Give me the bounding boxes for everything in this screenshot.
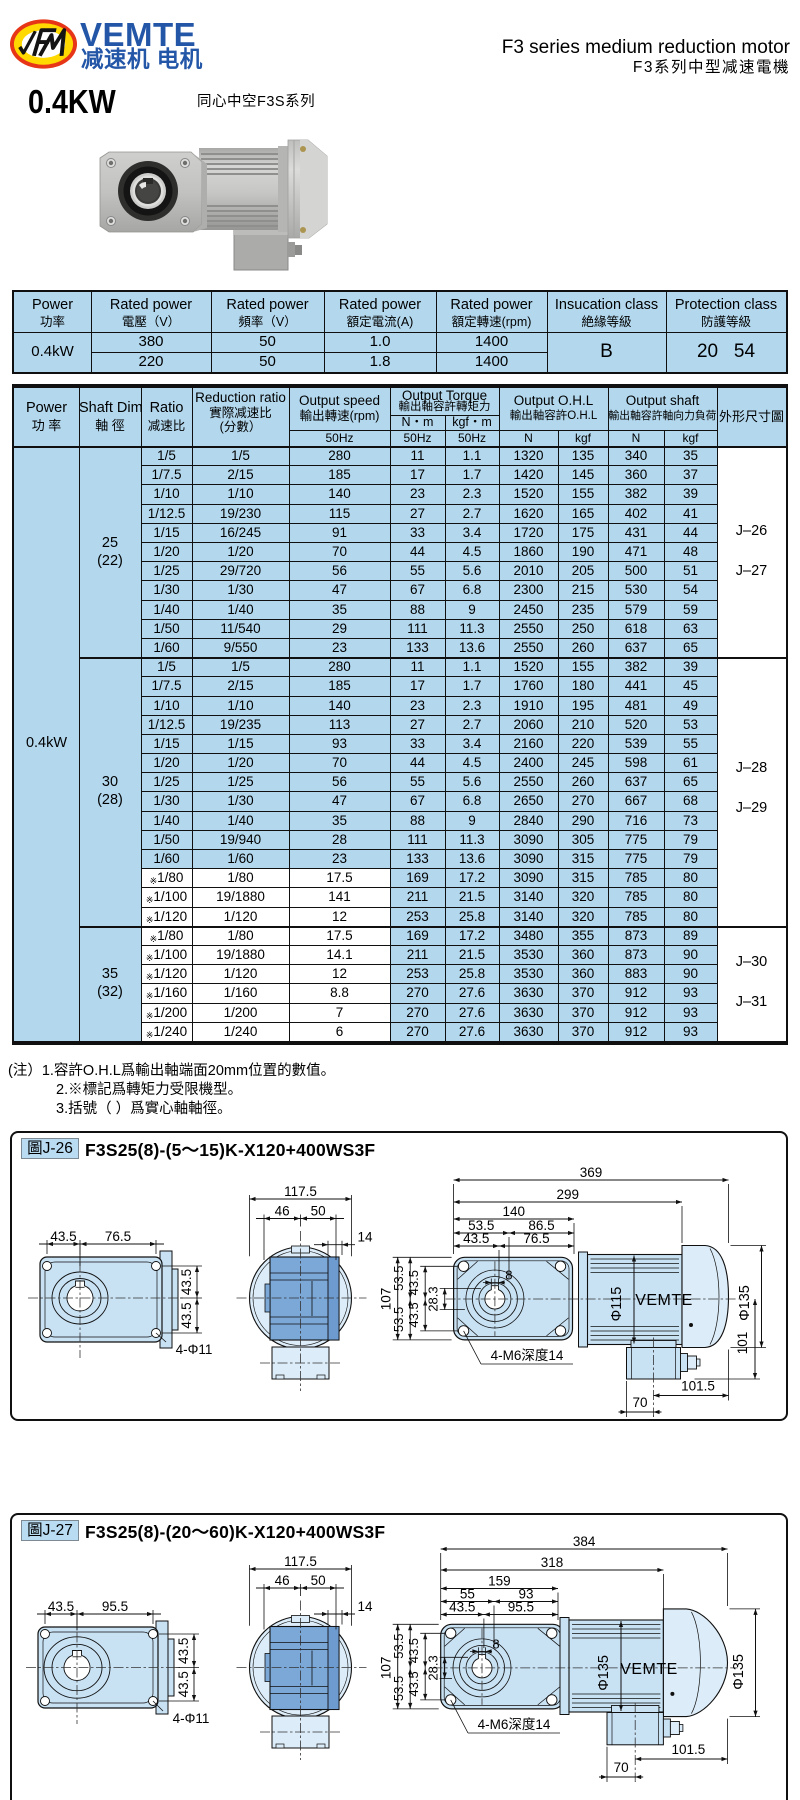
svg-text:4-Φ11: 4-Φ11 — [173, 1711, 210, 1726]
svg-text:28.3: 28.3 — [426, 1655, 441, 1680]
svg-text:101.5: 101.5 — [672, 1742, 706, 1757]
svg-text:50: 50 — [311, 1573, 326, 1588]
svg-text:117.5: 117.5 — [284, 1554, 317, 1569]
svg-text:8: 8 — [492, 1636, 499, 1651]
svg-text:VEMTE: VEMTE — [635, 1292, 693, 1309]
svg-text:14: 14 — [357, 1230, 373, 1245]
svg-text:4-Φ11: 4-Φ11 — [176, 1342, 213, 1357]
svg-text:70: 70 — [614, 1760, 629, 1775]
svg-text:43.5: 43.5 — [406, 1671, 421, 1696]
svg-text:43.5: 43.5 — [179, 1269, 194, 1295]
svg-text:4-M6深度14: 4-M6深度14 — [491, 1348, 564, 1363]
svg-text:50: 50 — [311, 1204, 326, 1219]
svg-text:299: 299 — [557, 1187, 580, 1202]
svg-text:53.5: 53.5 — [391, 1633, 406, 1658]
svg-text:43.5: 43.5 — [406, 1302, 421, 1327]
svg-text:Φ135: Φ135 — [737, 1285, 753, 1321]
svg-text:384: 384 — [573, 1534, 596, 1549]
svg-text:101.5: 101.5 — [681, 1379, 715, 1394]
svg-text:43.5: 43.5 — [406, 1638, 421, 1663]
svg-text:53.5: 53.5 — [391, 1266, 406, 1291]
svg-text:159: 159 — [488, 1574, 511, 1589]
svg-text:95.5: 95.5 — [102, 1599, 128, 1614]
svg-text:46: 46 — [275, 1573, 290, 1588]
svg-text:43.5: 43.5 — [176, 1671, 191, 1697]
svg-text:46: 46 — [275, 1204, 290, 1219]
svg-text:43.5: 43.5 — [449, 1600, 475, 1615]
svg-text:76.5: 76.5 — [523, 1231, 549, 1246]
svg-text:140: 140 — [503, 1204, 526, 1219]
svg-text:318: 318 — [541, 1555, 564, 1570]
svg-text:43.5: 43.5 — [48, 1599, 74, 1614]
svg-text:Φ135: Φ135 — [596, 1655, 612, 1691]
svg-text:43.5: 43.5 — [176, 1638, 191, 1664]
svg-text:53.5: 53.5 — [391, 1307, 406, 1332]
svg-text:Φ135: Φ135 — [731, 1654, 747, 1690]
svg-text:43.5: 43.5 — [463, 1231, 489, 1246]
svg-text:43.5: 43.5 — [179, 1302, 194, 1328]
svg-text:43.5: 43.5 — [406, 1270, 421, 1295]
svg-text:95.5: 95.5 — [508, 1600, 534, 1615]
svg-text:4-M6深度14: 4-M6深度14 — [478, 1717, 551, 1732]
svg-text:101: 101 — [735, 1332, 750, 1355]
svg-text:VEMTE: VEMTE — [620, 1661, 678, 1678]
svg-text:369: 369 — [580, 1165, 603, 1180]
svg-text:53.5: 53.5 — [391, 1676, 406, 1701]
svg-text:Φ115: Φ115 — [609, 1287, 625, 1322]
svg-text:43.5: 43.5 — [50, 1229, 76, 1244]
svg-text:14: 14 — [357, 1599, 373, 1614]
svg-text:117.5: 117.5 — [284, 1184, 317, 1199]
svg-text:28.3: 28.3 — [426, 1286, 441, 1311]
svg-text:70: 70 — [632, 1395, 647, 1410]
svg-text:76.5: 76.5 — [105, 1229, 131, 1244]
